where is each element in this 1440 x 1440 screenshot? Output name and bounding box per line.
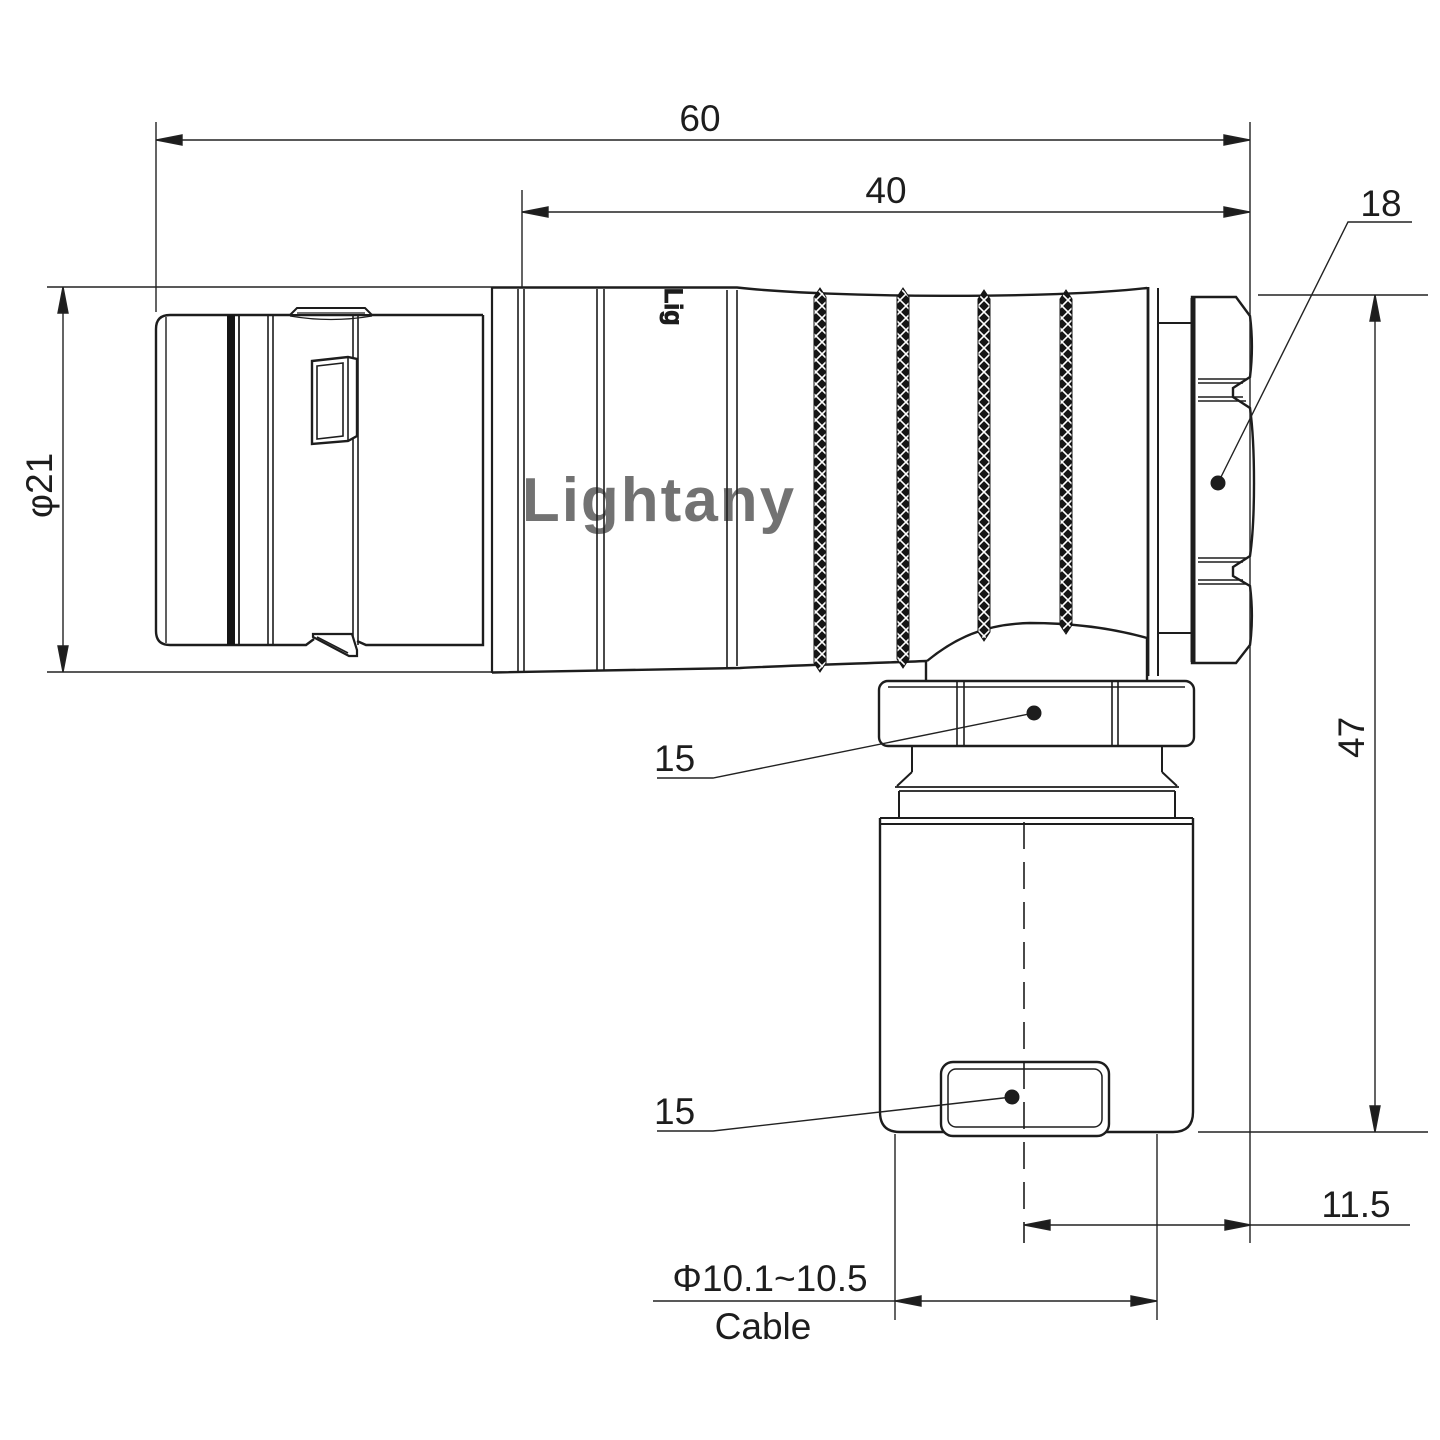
connector-drawing-svg: Lightany bbox=[0, 0, 1440, 1440]
dim-60-label: 60 bbox=[679, 98, 720, 139]
connector-front-shell bbox=[156, 308, 483, 656]
cable-dia-label: Φ10.1~10.5 bbox=[672, 1258, 867, 1299]
clamp-15-label: 15 bbox=[654, 1091, 695, 1132]
cable-word-label: Cable bbox=[715, 1306, 812, 1347]
dia-21-label: φ21 bbox=[19, 453, 60, 518]
dim-47-label: 47 bbox=[1331, 717, 1372, 758]
dim-40-label: 40 bbox=[865, 170, 906, 211]
cable-clamp bbox=[941, 1062, 1109, 1136]
dim-11-5-label: 11.5 bbox=[1321, 1184, 1390, 1225]
connector-main-body: Lig bbox=[492, 287, 1192, 680]
ref-18-label: 18 bbox=[1360, 183, 1401, 224]
knurl-bands bbox=[814, 288, 1072, 672]
body-brand-text: Lig bbox=[659, 288, 687, 326]
latch-window bbox=[312, 357, 357, 444]
dimension-cable-diameter: Φ10.1~10.5 Cable bbox=[653, 1134, 1157, 1347]
hex-15-label: 15 bbox=[654, 738, 695, 779]
watermark-text: Lightany bbox=[522, 466, 796, 535]
washer-stack bbox=[895, 746, 1179, 818]
technical-drawing-canvas: Lightany bbox=[0, 0, 1440, 1440]
latch-hook bbox=[313, 634, 357, 656]
dimension-rear-length: 40 bbox=[522, 170, 1250, 287]
dimension-cable-offset: 11.5 bbox=[1024, 1184, 1410, 1230]
